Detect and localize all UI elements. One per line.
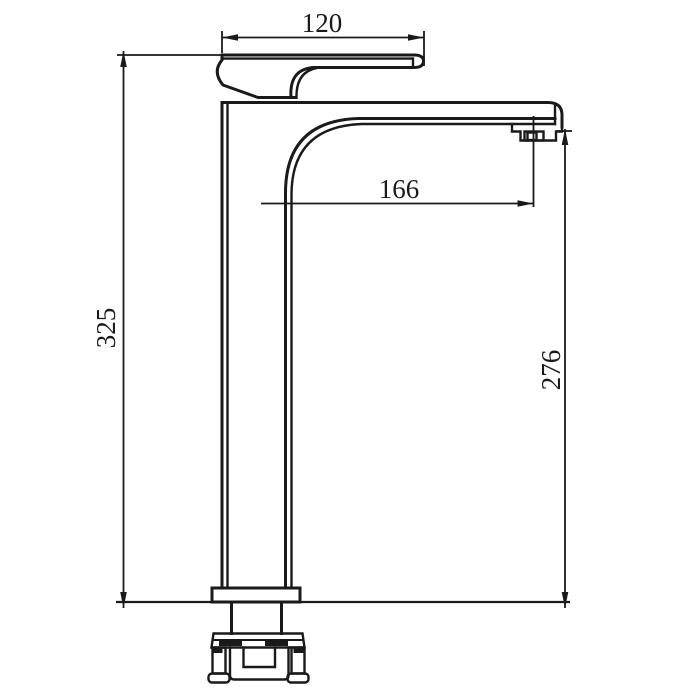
dimension-overall-height: 325 <box>91 51 221 608</box>
dim166-arrow-right <box>518 200 534 207</box>
mounting-shank <box>232 602 282 634</box>
mounting-nut-bar-right <box>265 641 288 647</box>
dim276-label: 276 <box>536 350 566 391</box>
mounting-bolt-right-foot <box>288 674 309 683</box>
handle-neck-outer <box>291 68 314 98</box>
dim325-label: 325 <box>91 308 121 349</box>
dim120-arrow-right <box>408 34 424 41</box>
handle-left-profile <box>217 55 296 98</box>
dim166-label: 166 <box>379 174 420 204</box>
dim325-arrow-up <box>120 51 127 67</box>
dimension-spout-outlet-height: 276 <box>536 129 572 608</box>
base-flange <box>212 588 300 602</box>
dim120-label: 120 <box>302 8 343 38</box>
spout-underside-outer <box>286 119 556 589</box>
spout-underside-inner <box>292 124 556 588</box>
mounting-bracket-inner <box>244 648 276 668</box>
faucet-dimension-drawing: 120 325 166 276 <box>0 0 700 700</box>
mounting-nut-bar-left <box>219 641 242 647</box>
faucet-outline <box>116 55 570 683</box>
dimension-handle-length: 120 <box>222 8 424 66</box>
dim325-arrow-down <box>120 592 127 608</box>
mounting-bolt-left-foot <box>209 674 230 683</box>
handle-lever-outline <box>222 55 424 68</box>
technical-drawing-canvas: 120 325 166 276 <box>0 0 700 700</box>
mounting-bracket-outer <box>230 648 289 680</box>
dim120-arrow-left <box>222 34 238 41</box>
aerator-small-box <box>528 133 537 141</box>
dim276-arrow-down <box>562 592 569 608</box>
dimension-spout-reach: 166 <box>261 116 534 207</box>
